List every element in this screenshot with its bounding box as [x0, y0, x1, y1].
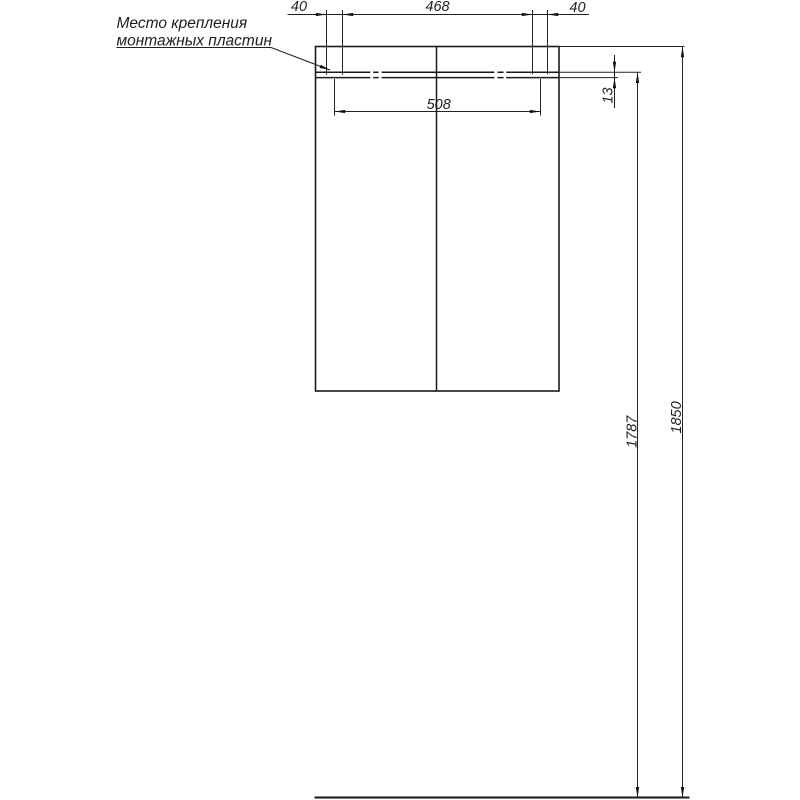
svg-text:Место крепления: Место крепления	[117, 15, 248, 32]
svg-text:508: 508	[427, 97, 451, 113]
svg-text:468: 468	[425, 0, 449, 15]
svg-text:40: 40	[291, 0, 307, 15]
svg-text:13: 13	[601, 87, 617, 103]
svg-text:1850: 1850	[669, 401, 685, 433]
svg-text:40: 40	[569, 0, 585, 16]
svg-text:1787: 1787	[624, 415, 640, 448]
svg-text:монтажных пластин: монтажных пластин	[117, 33, 273, 50]
